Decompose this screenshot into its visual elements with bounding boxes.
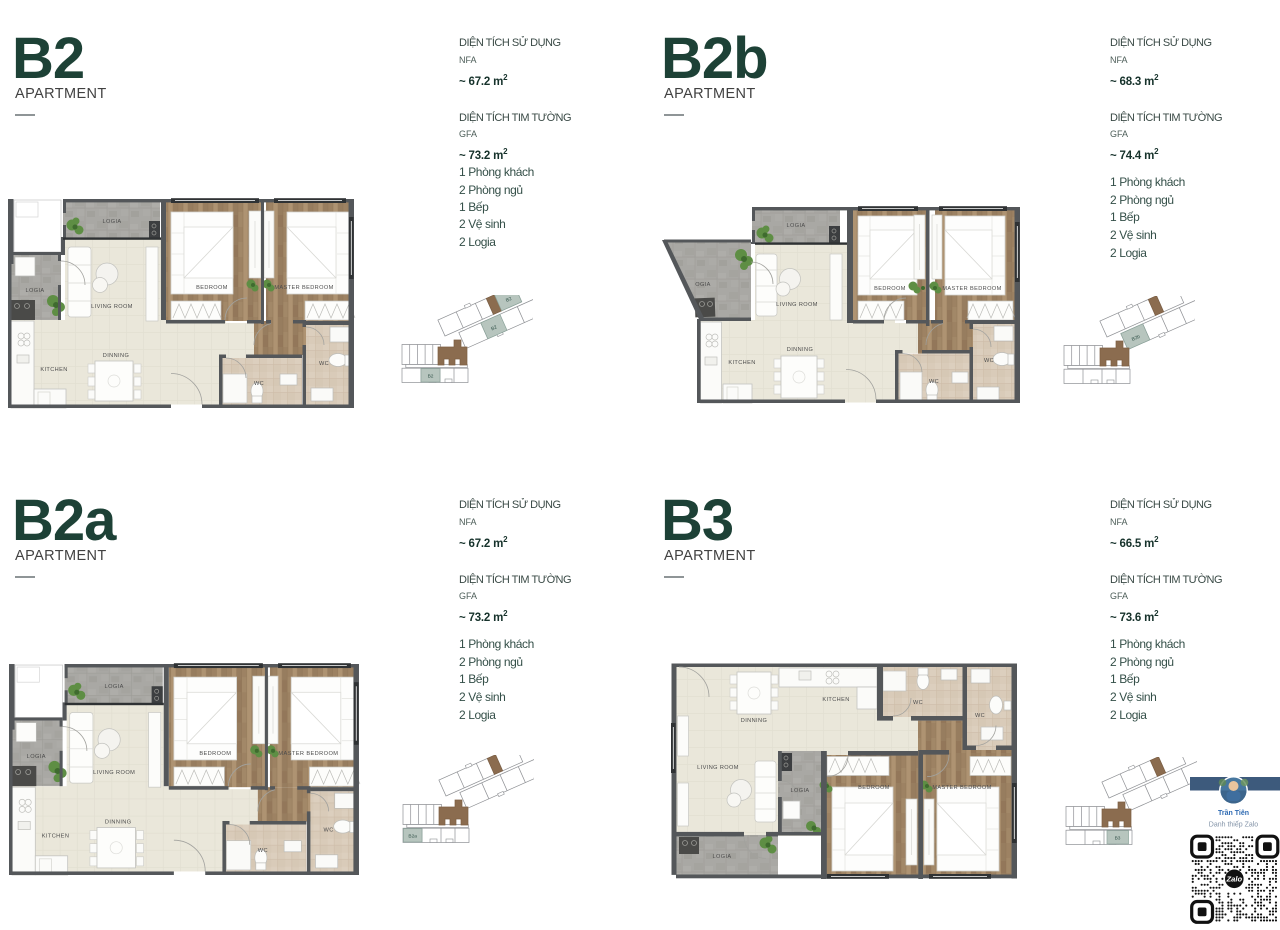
- svg-text:LIVING ROOM: LIVING ROOM: [697, 765, 739, 771]
- svg-text:LIVING ROOM: LIVING ROOM: [776, 302, 818, 308]
- svg-text:KITCHEN: KITCHEN: [40, 367, 67, 373]
- svg-text:LOGIA: LOGIA: [102, 219, 121, 225]
- svg-text:KITCHEN: KITCHEN: [42, 834, 70, 840]
- svg-text:WC: WC: [975, 713, 985, 719]
- svg-text:WC: WC: [254, 381, 264, 387]
- svg-text:Zalo: Zalo: [1225, 875, 1242, 884]
- svg-text:WC: WC: [258, 848, 268, 854]
- svg-text:BEDROOM: BEDROOM: [196, 285, 228, 291]
- svg-text:LIVING ROOM: LIVING ROOM: [91, 304, 133, 310]
- svg-text:DINNING: DINNING: [741, 718, 767, 724]
- svg-text:B2: B2: [428, 374, 434, 380]
- svg-text:LIVING ROOM: LIVING ROOM: [93, 770, 135, 776]
- svg-text:LOGIA: LOGIA: [25, 288, 44, 294]
- svg-text:Danh thiếp Zalo: Danh thiếp Zalo: [1209, 820, 1259, 829]
- svg-text:LOGIA: LOGIA: [786, 223, 805, 229]
- svg-text:WC: WC: [324, 828, 334, 834]
- svg-text:KITCHEN: KITCHEN: [728, 360, 755, 366]
- svg-text:MASTER BEDROOM: MASTER BEDROOM: [278, 751, 338, 757]
- svg-text:DINNING: DINNING: [105, 820, 132, 826]
- svg-text:LOGIA: LOGIA: [712, 854, 731, 860]
- svg-text:MASTER BEDROOM: MASTER BEDROOM: [932, 785, 991, 791]
- svg-text:DINNING: DINNING: [787, 347, 813, 353]
- svg-text:WC: WC: [984, 358, 994, 364]
- svg-text:BEDROOM: BEDROOM: [858, 785, 890, 791]
- svg-text:WC: WC: [929, 379, 939, 385]
- svg-text:BEDROOM: BEDROOM: [199, 751, 231, 757]
- svg-text:B2a: B2a: [408, 834, 417, 840]
- svg-text:LOGIA: LOGIA: [790, 788, 809, 794]
- svg-text:DINNING: DINNING: [103, 353, 129, 359]
- svg-text:KITCHEN: KITCHEN: [822, 697, 849, 703]
- svg-text:WC: WC: [913, 700, 923, 706]
- svg-text:Trần Tiên: Trần Tiên: [1218, 808, 1249, 817]
- svg-text:LOGIA: LOGIA: [105, 684, 124, 690]
- svg-text:BEDROOM: BEDROOM: [874, 286, 906, 292]
- svg-text:WC: WC: [319, 361, 329, 367]
- svg-text:MASTER BEDROOM: MASTER BEDROOM: [274, 285, 333, 291]
- svg-text:LOGIA: LOGIA: [27, 754, 46, 760]
- svg-text:OGIA: OGIA: [695, 282, 711, 288]
- svg-text:MASTER BEDROOM: MASTER BEDROOM: [942, 286, 1001, 292]
